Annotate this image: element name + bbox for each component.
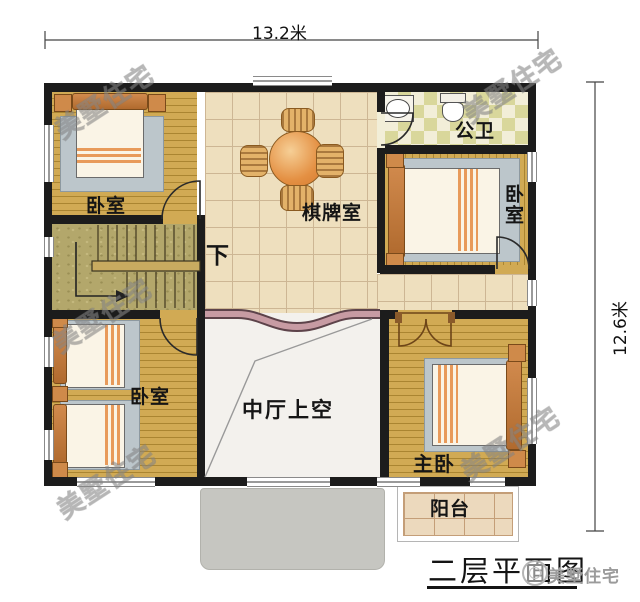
window (247, 477, 330, 487)
window (377, 477, 420, 487)
bed-headboard (53, 404, 67, 464)
wall-segment (377, 145, 536, 154)
door-opening (163, 215, 197, 224)
room-label-master-bedroom: 主卧 (413, 448, 455, 477)
bed (404, 168, 500, 254)
wall-segment (197, 215, 205, 313)
window (527, 280, 537, 306)
bathroom-sink (382, 95, 414, 122)
window (253, 76, 332, 86)
window (527, 152, 537, 182)
room-label-void: 中厅上空 (242, 394, 334, 424)
brand-logo-icon (522, 560, 548, 586)
nightstand (508, 344, 526, 362)
dimension-width-label: 13.2米 (252, 19, 307, 44)
corridor-floor (377, 274, 528, 310)
door-opening (160, 310, 197, 319)
bed-blanket (458, 169, 478, 251)
brand-logo-text: 美墅住宅 (548, 562, 620, 587)
bed-headboard (388, 164, 405, 258)
room-label-bedroom-top-left: 卧室 (86, 191, 126, 218)
window (44, 430, 54, 460)
bed-blanket (438, 365, 458, 443)
nightstand (148, 94, 166, 112)
door-opening (398, 310, 452, 319)
stool-north (281, 108, 315, 132)
window (44, 125, 54, 182)
room-label-balcony: 阳台 (430, 494, 470, 521)
door-opening (495, 265, 528, 274)
room-label-bedroom-right: 卧室 (500, 184, 527, 226)
nightstand (52, 462, 68, 478)
window (44, 237, 54, 257)
stool-east (316, 144, 344, 178)
door-opening (377, 112, 385, 148)
room-label-stairs-down: 下 (206, 236, 230, 270)
wall-segment (197, 310, 205, 486)
wall-segment (380, 310, 389, 486)
canopy-below (200, 488, 385, 570)
bed-blanket (77, 148, 141, 164)
floor-plan-canvas: 13.2米 12.6米 卧室 棋牌室 下 公卫 卧室 卧室 中厅上空 主卧 阳台… (0, 0, 640, 602)
bed-blanket (105, 325, 121, 385)
room-label-bedroom-bottom-left: 卧室 (130, 382, 170, 409)
stool-west (240, 145, 268, 177)
nightstand (52, 386, 68, 402)
dimension-height-label: 12.6米 (606, 301, 631, 356)
room-label-game-room: 棋牌室 (302, 198, 362, 225)
